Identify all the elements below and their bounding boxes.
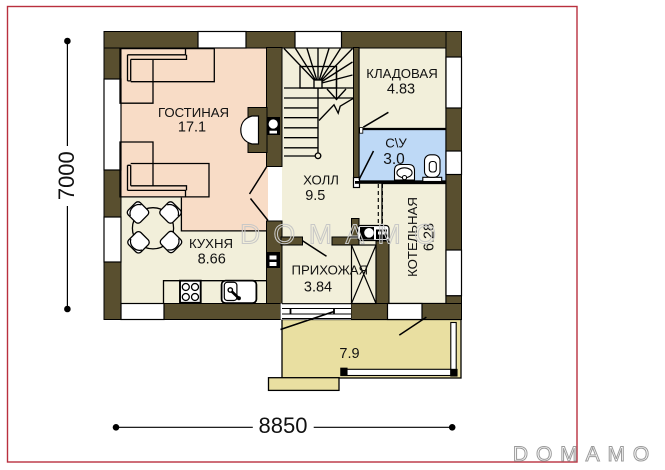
svg-text:КУХНЯ: КУХНЯ xyxy=(189,236,233,251)
svg-text:8850: 8850 xyxy=(259,413,308,438)
svg-text:17.1: 17.1 xyxy=(178,120,206,136)
svg-text:DOMAMO: DOMAMO xyxy=(240,219,450,250)
svg-text:DOMAMO: DOMAMO xyxy=(513,443,657,466)
svg-text:7.9: 7.9 xyxy=(339,346,359,362)
svg-text:ХОЛЛ: ХОЛЛ xyxy=(303,173,339,188)
svg-text:КЛАДОВАЯ: КЛАДОВАЯ xyxy=(366,66,437,81)
svg-text:3.0: 3.0 xyxy=(383,151,405,168)
svg-text:ПРИХОЖАЯ: ПРИХОЖАЯ xyxy=(292,263,369,278)
svg-text:3.84: 3.84 xyxy=(304,279,332,295)
svg-text:ГОСТИНАЯ: ГОСТИНАЯ xyxy=(158,105,229,120)
svg-text:С\У: С\У xyxy=(385,136,407,151)
svg-text:9.5: 9.5 xyxy=(305,188,325,204)
svg-text:8.66: 8.66 xyxy=(198,252,226,268)
svg-text:4.83: 4.83 xyxy=(387,82,415,98)
svg-text:7000: 7000 xyxy=(54,151,79,200)
